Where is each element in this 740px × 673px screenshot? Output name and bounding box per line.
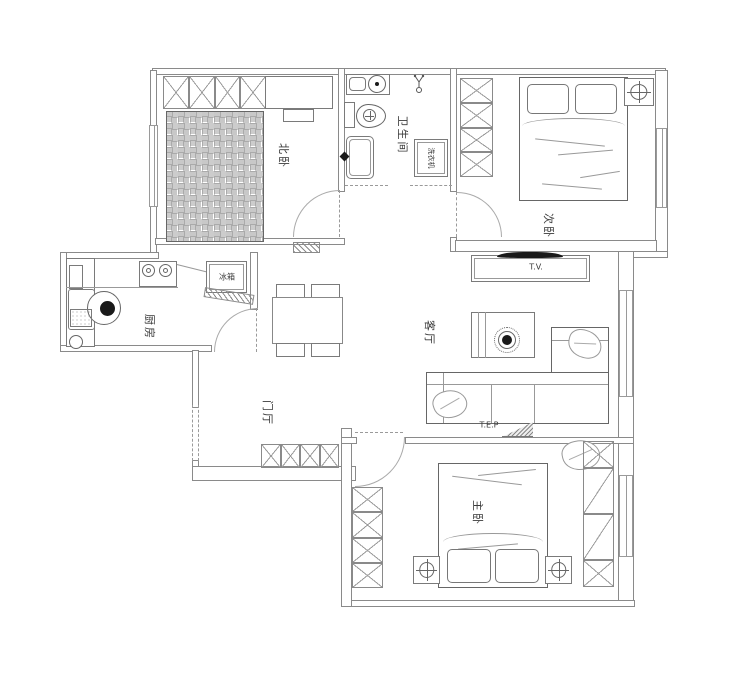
wardrobe	[163, 76, 266, 109]
tv-set	[497, 252, 563, 258]
tatami-bed	[166, 111, 264, 242]
pillow	[495, 549, 539, 583]
toilet-tank	[344, 102, 355, 128]
wall-appliance	[69, 265, 83, 289]
room-label-second-bedroom: 次卧	[541, 213, 557, 239]
cabinet	[265, 76, 333, 109]
room-label-north-bedroom: 北卧	[276, 143, 292, 169]
wall	[341, 428, 352, 607]
wardrobe-cell	[352, 487, 383, 512]
wardrobe-cell	[583, 468, 614, 514]
wardrobe-cell	[460, 128, 493, 153]
threshold-hatch	[293, 242, 320, 253]
room-label-living-room: 客厅	[422, 320, 438, 346]
basin-drain	[375, 82, 379, 86]
window	[149, 125, 158, 207]
pillow	[527, 84, 569, 114]
door-leaf-master-bedroom	[355, 432, 403, 433]
electrical-panel	[502, 422, 533, 437]
wardrobe-cell	[460, 78, 493, 103]
dining-chair	[276, 284, 305, 298]
dining-chair	[311, 284, 340, 298]
wall	[192, 466, 356, 481]
bathroom-opening-dashed	[410, 185, 452, 186]
pillow	[575, 84, 617, 114]
sofa-seat-line	[534, 385, 535, 423]
soap-tray	[349, 77, 366, 91]
shower-tray-inner	[349, 139, 371, 176]
tv-label: T.V.	[529, 263, 542, 272]
nightstand-lamp	[413, 556, 440, 584]
door-leaf-kitchen	[256, 308, 257, 352]
sofa-back-line	[427, 384, 608, 385]
pillow	[447, 549, 491, 583]
cabinet-cell	[300, 444, 320, 468]
wall	[345, 600, 635, 607]
wardrobe-cell	[189, 76, 215, 109]
door-arc-north-bedroom	[293, 190, 340, 237]
room-label-bathroom: 卫生间	[395, 116, 411, 155]
wall	[192, 350, 199, 408]
nightstand-lamp	[545, 556, 572, 584]
shower-head-icon	[410, 74, 428, 94]
wall	[455, 240, 657, 252]
stove-burner	[159, 264, 172, 277]
wardrobe-cell	[240, 76, 266, 109]
window	[619, 475, 633, 557]
door-arc-kitchen	[214, 308, 258, 352]
fridge-label: 冰箱	[219, 272, 235, 283]
wardrobe-cell	[460, 152, 493, 177]
floor-plan: 北卧 洗衣机 卫生间 次卧 冰箱	[0, 0, 740, 673]
wardrobe-cell	[460, 103, 493, 128]
table-plant-center	[502, 335, 512, 345]
wardrobe-cell	[583, 441, 614, 468]
washing-machine-label: 洗衣机	[426, 148, 436, 169]
wall	[628, 251, 668, 258]
nightstand	[283, 109, 314, 122]
wardrobe	[460, 78, 493, 177]
window	[656, 128, 667, 208]
toilet-flush	[363, 109, 376, 122]
cabinet-cell	[320, 444, 340, 468]
electrical-panel-label: T.E.P	[480, 421, 499, 430]
wardrobe-cell	[583, 560, 614, 587]
entry-door-dashed	[192, 405, 193, 461]
wardrobe-cell	[583, 514, 614, 560]
door-arc-second-bedroom	[457, 192, 502, 237]
door-leaf-second-bedroom	[456, 192, 457, 237]
wall	[152, 68, 666, 75]
ceiling-lamp	[624, 78, 654, 106]
dining-chair	[311, 343, 340, 357]
cabinet-cell	[281, 444, 301, 468]
wall	[338, 68, 345, 192]
door-leaf-north-bedroom	[339, 190, 340, 237]
wardrobe-cell	[352, 563, 383, 588]
wardrobe-cell	[215, 76, 241, 109]
wardrobe	[583, 441, 614, 587]
wardrobe-cell	[352, 538, 383, 563]
room-label-entry-hall: 门厅	[260, 400, 276, 426]
drain-rack	[70, 309, 92, 327]
dining-chair	[276, 343, 305, 357]
wardrobe-cell	[163, 76, 189, 109]
wall	[450, 68, 457, 192]
room-label-kitchen: 厨房	[142, 314, 158, 340]
cabinet-cell	[261, 444, 281, 468]
sofa-seat-line	[491, 385, 492, 423]
door-arc-master-bedroom	[355, 437, 405, 487]
entry-door-dashed	[198, 405, 199, 461]
faucet	[100, 301, 115, 316]
dining-table	[272, 297, 343, 344]
floor-drain	[69, 335, 83, 349]
bathroom-opening-dashed	[345, 185, 388, 186]
counter-edge	[66, 287, 178, 288]
room-label-master-bedroom: 主卧	[470, 500, 486, 526]
stove-burner	[142, 264, 155, 277]
shoe-cabinet	[261, 444, 339, 468]
wardrobe	[352, 487, 383, 588]
window	[619, 290, 633, 397]
wardrobe-cell	[352, 512, 383, 537]
